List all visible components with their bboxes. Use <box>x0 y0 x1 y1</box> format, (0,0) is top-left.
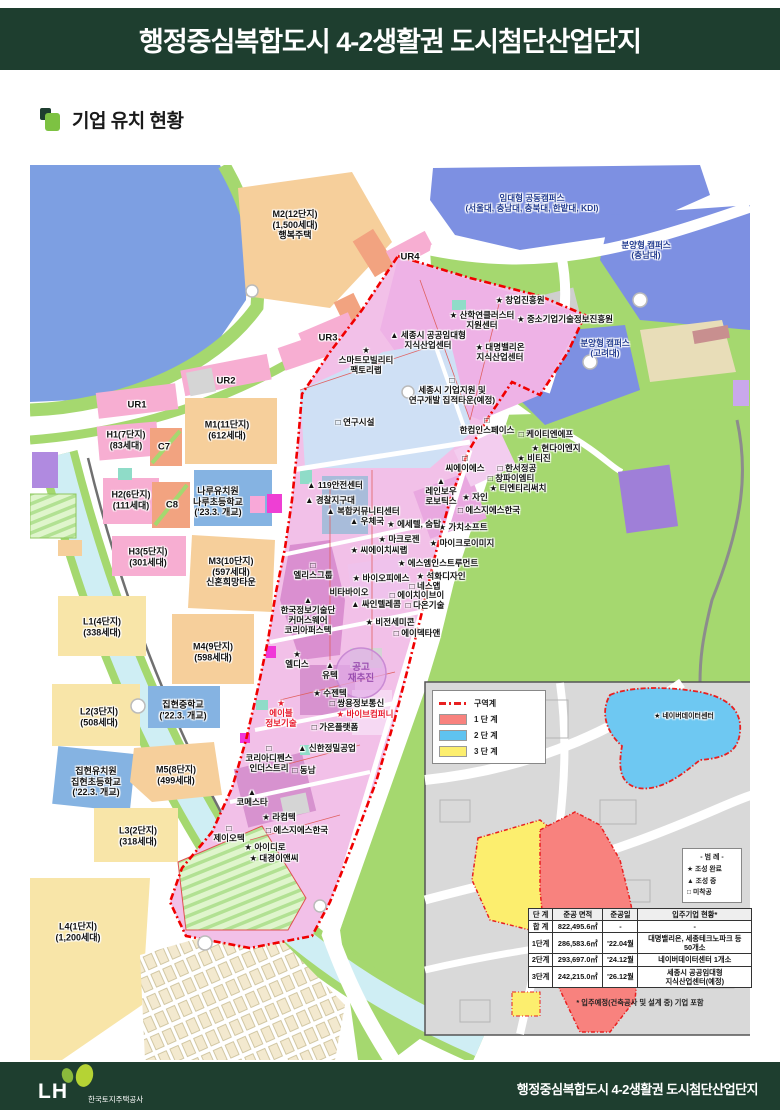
map-label: ★ 스마트모빌리티 팩토리랩 <box>339 345 394 375</box>
map-label: □ 코리아디펜스 인더스트리 <box>246 743 293 773</box>
table-cell: - <box>638 921 752 933</box>
map-label: M3(10단지) (597세대) 신혼희망타운 <box>206 556 256 588</box>
table-cell: 242,215.0㎡ <box>553 966 603 987</box>
map-label: M4(9단지) (598세대) <box>193 641 233 662</box>
table-cell: '24.12월 <box>603 954 638 966</box>
map-label: L4(1단지) (1,200세대) <box>55 921 100 942</box>
table-cell: 293,697.0㎡ <box>553 954 603 966</box>
map-label: ★ 네이버데이터센터 <box>654 713 714 721</box>
map-label: 집현유치원 집현초등학교 ('22.3. 개교) <box>71 766 121 798</box>
table-header-cell: 단 계 <box>529 909 553 921</box>
table-cell: 2단계 <box>529 954 553 966</box>
phase-label: 2 단 계 <box>474 730 498 741</box>
map-label: □ 에스지에스한국 <box>266 825 328 835</box>
map-label: UR4 <box>400 251 419 262</box>
map-label: ★ 라컴텍 <box>262 812 295 822</box>
map-label: 나루유치원 나루초등학교 ('23.3. 개교) <box>193 486 243 518</box>
map-label: M2(12단지) (1,500세대) 행복주택 <box>272 209 317 241</box>
map-label: ★ 엘디스 <box>285 649 308 669</box>
table-cell: 1단계 <box>529 933 553 954</box>
map-label: UR3 <box>318 332 337 343</box>
table-cell: 822,495.6㎡ <box>553 921 603 933</box>
section-title: 기업 유치 현황 <box>72 106 183 133</box>
map-label: L2(3단지) (508세대) <box>80 706 118 727</box>
marker-legend: - 범 례 - ★ 조성 완료▲ 조성 중□ 미착공 <box>682 848 742 903</box>
footer-title: 행정중심복합도시 4-2생활권 도시첨단산업단지 <box>517 1079 758 1098</box>
map-label: ★ 산학연클러스터 지원센터 <box>450 310 515 330</box>
phase-label: 3 단 계 <box>474 746 498 757</box>
marker-legend-item: ★ 조성 완료 <box>687 864 737 876</box>
map-label: ★ 대경이앤씨 <box>249 853 298 863</box>
map-label: □ 쌍용정보통신 <box>330 698 384 708</box>
table-header-row: 단 계준공 면적준공일입주기업 현황* <box>529 909 752 921</box>
phase-swatch-icon <box>439 730 467 741</box>
phase-label: 구역계 <box>474 698 496 709</box>
map-label: □ 가온플랫폼 <box>312 722 359 732</box>
map-label: □ 에스지에스한국 <box>458 505 520 515</box>
map-label: ★ 가치소프트 <box>438 522 487 532</box>
lh-logo: LH 한국토지주택공사 <box>38 1068 238 1106</box>
map-label: C7 <box>158 441 170 452</box>
map-label: □ 한서정공 <box>498 463 537 473</box>
map-label: ★ 씨에이치씨랩 <box>351 545 408 555</box>
map-label: L3(2단지) (318세대) <box>119 825 157 846</box>
footer-bar: LH 한국토지주택공사 행정중심복합도시 4-2생활권 도시첨단산업단지 <box>0 1062 780 1110</box>
map-label: M5(8단지) (499세대) <box>156 764 196 785</box>
map-label: ▲ 우체국 <box>350 516 384 526</box>
map-label: □ 동남 <box>292 765 315 775</box>
phase-legend-item: 구역계 <box>439 695 539 711</box>
phase-legend: 구역계1 단 계2 단 계3 단 계 <box>432 690 546 764</box>
parcel-purple <box>32 452 58 488</box>
map-label: UR2 <box>216 375 235 386</box>
map-label: H1(7단지) (83세대) <box>106 429 145 450</box>
table-header-cell: 준공 면적 <box>553 909 603 921</box>
marker-legend-item: ▲ 조성 중 <box>687 876 737 888</box>
map-label: □ 제이오텍 <box>213 823 244 843</box>
table-cell: - <box>603 921 638 933</box>
map-label: □ 연구시설 <box>336 417 375 427</box>
map-label: 공고 재추진 <box>348 662 374 684</box>
marker-legend-item: □ 미착공 <box>687 887 737 899</box>
map-label: □ 한컴인스페이스 <box>460 415 515 435</box>
map-label: ▲ 한국정보기술단 커머스웨어 코리아퍼스텍 <box>281 595 336 635</box>
page-title: 행정중심복합도시 4-2생활권 도시첨단산업단지 <box>139 20 641 59</box>
lh-logo-text: LH <box>38 1080 68 1104</box>
map-label: □ 케이티엔에프 <box>519 429 573 439</box>
table-cell: '22.04월 <box>603 933 638 954</box>
phase-swatch-icon <box>439 714 467 725</box>
phase-legend-item: 1 단 계 <box>439 711 539 727</box>
parcel-small <box>58 540 82 556</box>
map-label: ★ 현다이엔지 <box>531 443 580 453</box>
table-cell: '26.12월 <box>603 966 638 987</box>
table-cell: 3단계 <box>529 966 553 987</box>
map-label: ★ 티엔티리써치 <box>490 483 547 493</box>
phase-legend-item: 3 단 계 <box>439 743 539 759</box>
map-label: ▲ 레인보우 로보틱스 <box>425 476 456 506</box>
table-header-cell: 준공일 <box>603 909 638 921</box>
map-label: ★ 비전세미콘 <box>365 617 414 627</box>
table-row: 3단계242,215.0㎡'26.12월세종시 공공임대형 지식산업센터(예정) <box>529 966 752 987</box>
map-label: H2(6단지) (111세대) <box>111 489 150 510</box>
table-cell: 286,583.6㎡ <box>553 933 603 954</box>
map-label: ★ 비티진 <box>517 453 550 463</box>
map-label: 분양형 캠퍼스 (고려대) <box>580 338 629 358</box>
map-label: UR1 <box>127 399 146 410</box>
phase-swatch-icon <box>439 746 467 757</box>
map-label: ▲ 119안전센터 <box>307 480 363 490</box>
map-label: □ 씨에이에스 <box>445 453 484 473</box>
hill-building <box>618 465 678 534</box>
title-bar: 행정중심복합도시 4-2생활권 도시첨단산업단지 <box>0 8 780 70</box>
map-label: ★ 자인 <box>462 492 488 502</box>
footer-org: 한국토지주택공사 <box>88 1094 143 1105</box>
phase-label: 1 단 계 <box>474 714 498 725</box>
map-label: ★ 아이디로 <box>244 842 285 852</box>
map-label: ▲ 복합커뮤니티센터 <box>326 506 399 516</box>
pink-bit <box>250 496 265 513</box>
magenta-bit <box>267 494 282 513</box>
map-label: ▲ 코메스타 <box>236 787 267 807</box>
table-row: 합 계822,495.6㎡-- <box>529 921 752 933</box>
map-label: □ 다온기술 <box>406 600 445 610</box>
table-row: 2단계293,697.0㎡'24.12월네이버데이터센터 1개소 <box>529 954 752 966</box>
map-label: ▲ 경찰지구대 <box>305 495 355 505</box>
map-label: 임대형 공동캠퍼스 (서울대, 충남대, 충북대, 한밭대, KDI) <box>465 193 598 213</box>
map-label: ★ 바이브컴퍼니 <box>337 709 394 719</box>
map-label: C8 <box>166 499 178 510</box>
map-label: □ 세종시 기업지원 및 연구개발 집적타운(예정) <box>409 375 495 405</box>
page: 행정중심복합도시 4-2생활권 도시첨단산업단지 기업 유치 현황 <box>0 0 780 1110</box>
map-label: ★ 수젠텍 <box>313 688 346 698</box>
parcel-lavender <box>733 380 749 406</box>
cyan-bit <box>118 468 132 480</box>
map-label: ▲ 싸인텔레콤 <box>351 599 401 609</box>
phase-legend-item: 2 단 계 <box>439 727 539 743</box>
map-label: 집현중학교 ('22.3. 개교) <box>159 699 206 720</box>
table-cell: 합 계 <box>529 921 553 933</box>
table-footnote: * 입주예정(건축공사 및 설계 중) 기업 포함 <box>528 998 752 1008</box>
map-label: ★ 에세텔, 숨탑 <box>387 519 441 529</box>
table-cell: 대명밸리온, 세종테크노파크 등 50개소 <box>638 933 752 954</box>
table-cell: 네이버데이터센터 1개소 <box>638 954 752 966</box>
table-row: 1단계286,583.6㎡'22.04월대명밸리온, 세종테크노파크 등 50개… <box>529 933 752 954</box>
map-label: L1(4단지) (338세대) <box>83 616 121 637</box>
map-label: ▲ 신한정밀공업 <box>298 743 356 753</box>
map-label: M1(11단지) (612세대) <box>205 419 250 440</box>
map-label: □ 창파이엠티 <box>488 473 535 483</box>
section-bullet-icon <box>40 108 62 132</box>
map-label: ★ 바이오피에스 <box>353 573 410 583</box>
table-header-cell: 입주기업 현황* <box>638 909 752 921</box>
map-label: ★ 창업진흥원 <box>495 295 544 305</box>
marker-legend-title: - 범 례 - <box>687 852 737 862</box>
map-label: ★ 마크로젠 <box>378 534 419 544</box>
phase-table: 단 계준공 면적준공일입주기업 현황*합 계822,495.6㎡--1단계286… <box>528 908 752 988</box>
map-label: ★ 에이블 정보기술 <box>265 698 296 728</box>
phase-swatch-icon <box>439 702 467 705</box>
section-heading: 기업 유치 현황 <box>40 106 183 133</box>
map-label: H3(5단지) (301세대) <box>128 546 167 567</box>
table-cell: 세종시 공공임대형 지식산업센터(예정) <box>638 966 752 987</box>
parcel-hatch <box>30 494 76 538</box>
map-label: ▲ 세종시 공공임대형 지식산업센터 <box>390 330 466 350</box>
map-label: ★ 대명밸리온 지식산업센터 <box>475 342 524 362</box>
map-label: ★ 마이크로이미지 <box>430 538 495 548</box>
map-label: 분양형 캠퍼스 (충남대) <box>621 240 670 260</box>
map-label: □ 에이덱타앤 <box>394 628 441 638</box>
map-label: □ 엘리스그룹 <box>293 560 332 580</box>
map-label: ★ 중소기업기술정보진흥원 <box>517 314 613 324</box>
site-map: M2(12단지) (1,500세대) 행복주택M1(11단지) (612세대)H… <box>30 165 750 1060</box>
map-label: ★ 석화디자인 <box>416 571 465 581</box>
map-label: ★ 에스엠인스트루먼트 <box>398 558 478 568</box>
map-label: ▲ 유텍 <box>322 660 338 680</box>
lh-logo-ellipse2-icon <box>73 1062 95 1088</box>
